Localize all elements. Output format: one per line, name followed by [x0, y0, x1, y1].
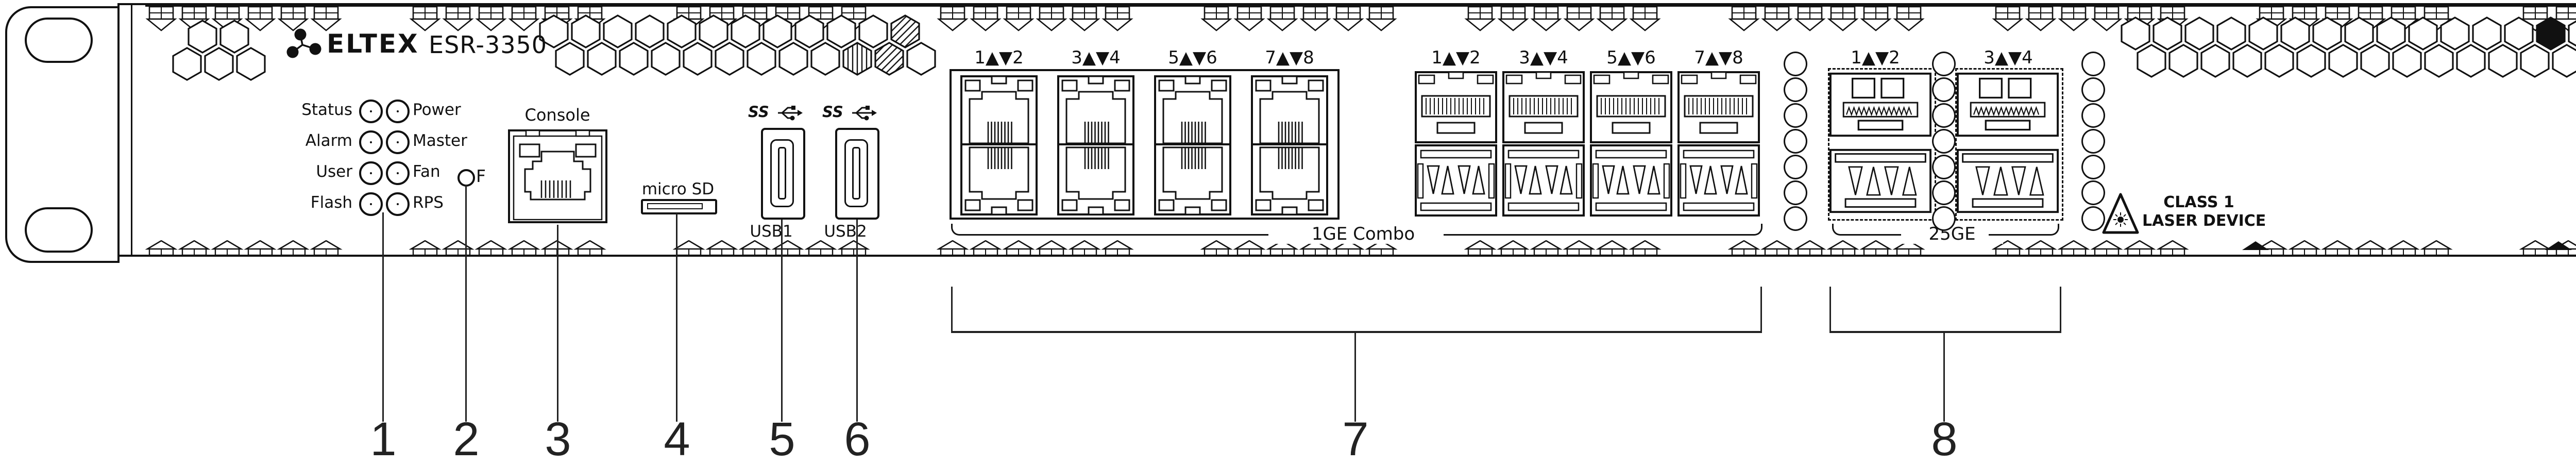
combo-group-label: 1GE Combo — [1268, 225, 1458, 244]
f-button-label: F — [476, 167, 486, 186]
usb-trident-icon — [777, 104, 804, 122]
sfp-port-5 — [1590, 71, 1672, 143]
sfp-pair-label-1-2: 1▲▼2 — [1415, 48, 1497, 68]
sfp28-brace-right — [1989, 224, 2059, 236]
brand-logotype: ELTEX — [327, 30, 419, 58]
usb1-port-slot — [770, 139, 794, 207]
led-label-rps: RPS — [413, 194, 444, 211]
led-label-status: Status — [268, 101, 352, 119]
callout-number-7: 7 — [1342, 416, 1368, 463]
chassis-joint-line-left — [131, 4, 132, 256]
esr-3350-front-panel-figure: ELTEX ESR-3350 Status Alarm User Flash P… — [0, 0, 2576, 465]
oval-vent-hole — [2081, 103, 2105, 128]
oval-vent-hole — [1932, 129, 1956, 154]
oval-vent-hole — [1784, 52, 1807, 76]
usb-trident-icon — [851, 104, 878, 122]
oval-vent-hole — [2081, 180, 2105, 205]
alarm-led — [359, 130, 383, 154]
rps-led — [386, 192, 410, 216]
model-name: ESR-3350 — [429, 32, 547, 58]
rj45-port-2 — [960, 143, 1038, 215]
sfp28-port-3 — [1957, 72, 2059, 137]
rj45-pair-label-7-8: 7▲▼8 — [1248, 48, 1331, 68]
micro-sd-slot — [641, 199, 717, 214]
master-led — [386, 130, 410, 154]
sfp28-pair-label-3-4: 3▲▼4 — [1967, 48, 2049, 68]
usb-ss-mark: SS — [822, 104, 843, 121]
oval-vent-hole — [1932, 180, 1956, 205]
usb2-port-tongue — [852, 147, 860, 200]
usb1-label: USB1 — [740, 223, 802, 240]
usb1-port-tongue — [778, 147, 786, 200]
vent-tooth-filled — [2545, 241, 2572, 250]
oval-vent-hole — [1784, 103, 1807, 128]
callout-stem-7 — [1354, 331, 1356, 422]
combo-brace-right — [1444, 224, 1762, 236]
sfp-port-2 — [1415, 144, 1497, 217]
sfp28-port-2 — [1829, 148, 1931, 213]
callout-stem-8 — [1943, 331, 1945, 422]
callout-line-2 — [465, 185, 467, 422]
power-led — [386, 99, 410, 123]
sfp-port-7 — [1677, 71, 1760, 143]
oval-vent-hole — [1784, 155, 1807, 179]
sfp-port-8 — [1677, 144, 1760, 217]
led-label-fan: Fan — [413, 163, 440, 180]
oval-vent-hole — [1784, 206, 1807, 231]
sfp28-group-label: 25GE — [1901, 225, 2003, 244]
flash-led — [359, 192, 383, 216]
oval-vent-hole — [1932, 52, 1956, 76]
callout-number-8: 8 — [1931, 416, 1957, 463]
rj45-port-6 — [1154, 143, 1231, 215]
oval-vent-hole — [1932, 155, 1956, 179]
callout-number-2: 2 — [453, 416, 479, 463]
usb2-label: USB2 — [815, 223, 876, 240]
led-label-power: Power — [413, 101, 461, 119]
callout-bracket-8 — [1829, 287, 2061, 333]
oval-vent-hole — [1784, 180, 1807, 205]
rj45-port-7 — [1251, 75, 1328, 147]
oval-vent-hole — [2081, 155, 2105, 179]
callout-line-6 — [856, 220, 858, 422]
rj45-pair-label-5-6: 5▲▼6 — [1151, 48, 1234, 68]
usb1-port — [761, 128, 805, 220]
callout-number-6: 6 — [844, 416, 870, 463]
led-label-alarm: Alarm — [268, 132, 352, 150]
oval-vent-hole — [2081, 77, 2105, 102]
led-label-flash: Flash — [268, 194, 352, 211]
console-label: Console — [506, 106, 609, 124]
laser-warning-line1: CLASS 1 — [2142, 194, 2256, 211]
rj45-port-4 — [1057, 143, 1134, 215]
oval-vent-hole — [1932, 103, 1956, 128]
rj45-pair-label-1-2: 1▲▼2 — [958, 48, 1040, 68]
callout-number-5: 5 — [769, 416, 795, 463]
rj45-port-8 — [1251, 143, 1328, 215]
rack-ear-left-slot-bottom — [25, 207, 93, 253]
sfp-port-3 — [1502, 71, 1585, 143]
oval-vent-hole — [2081, 206, 2105, 231]
sfp28-port-1 — [1829, 72, 1931, 137]
oval-vent-hole — [2081, 52, 2105, 76]
rj45-port-1 — [960, 75, 1038, 147]
sfp28-pair-label-1-2: 1▲▼2 — [1834, 48, 1917, 68]
oval-vent-hole — [1932, 77, 1956, 102]
callout-line-3 — [557, 225, 558, 422]
sfp-pair-label-7-8: 7▲▼8 — [1677, 48, 1760, 68]
rj45-port-5 — [1154, 75, 1231, 147]
rj45-pair-label-3-4: 3▲▼4 — [1055, 48, 1137, 68]
eltex-fan-logo-icon — [286, 28, 321, 60]
sfp-port-1 — [1415, 71, 1497, 143]
combo-brace-left — [951, 224, 1270, 236]
callout-number-4: 4 — [664, 416, 690, 463]
oval-vent-hole — [1784, 129, 1807, 154]
usb-ss-mark: SS — [748, 104, 769, 121]
console-port — [507, 129, 608, 224]
callout-line-1 — [382, 212, 384, 422]
usb1-speed-icon: SS — [748, 103, 815, 124]
oval-vent-hole — [1932, 206, 1956, 231]
vent-tooth-filled — [2242, 241, 2269, 250]
sfp28-port-4 — [1957, 148, 2059, 213]
user-led — [359, 161, 383, 185]
callout-bracket-7 — [951, 287, 1762, 333]
led-label-user: User — [268, 163, 352, 180]
led-label-master: Master — [413, 132, 467, 150]
usb2-port-slot — [844, 139, 868, 207]
fan-led — [386, 161, 410, 185]
micro-sd-label: micro SD — [626, 180, 730, 198]
callout-number-3: 3 — [545, 416, 571, 463]
f-button — [457, 169, 475, 187]
sfp-pair-label-5-6: 5▲▼6 — [1590, 48, 1672, 68]
oval-vent-hole — [2081, 129, 2105, 154]
sfp-port-4 — [1502, 144, 1585, 217]
callout-line-5 — [781, 220, 783, 422]
sfp-pair-label-3-4: 3▲▼4 — [1502, 48, 1585, 68]
laser-warning-line2: LASER DEVICE — [2142, 212, 2256, 229]
status-led — [359, 99, 383, 123]
laser-warning-icon — [2102, 192, 2139, 235]
oval-vent-hole — [1784, 77, 1807, 102]
sfp-port-6 — [1590, 144, 1672, 217]
sfp28-brace-left — [1832, 224, 1903, 236]
rack-ear-left-slot-top — [25, 18, 93, 63]
callout-line-4 — [676, 213, 677, 422]
rj45-port-3 — [1057, 75, 1134, 147]
callout-number-1: 1 — [370, 416, 396, 463]
usb2-port — [835, 128, 879, 220]
usb2-speed-icon: SS — [822, 103, 889, 124]
